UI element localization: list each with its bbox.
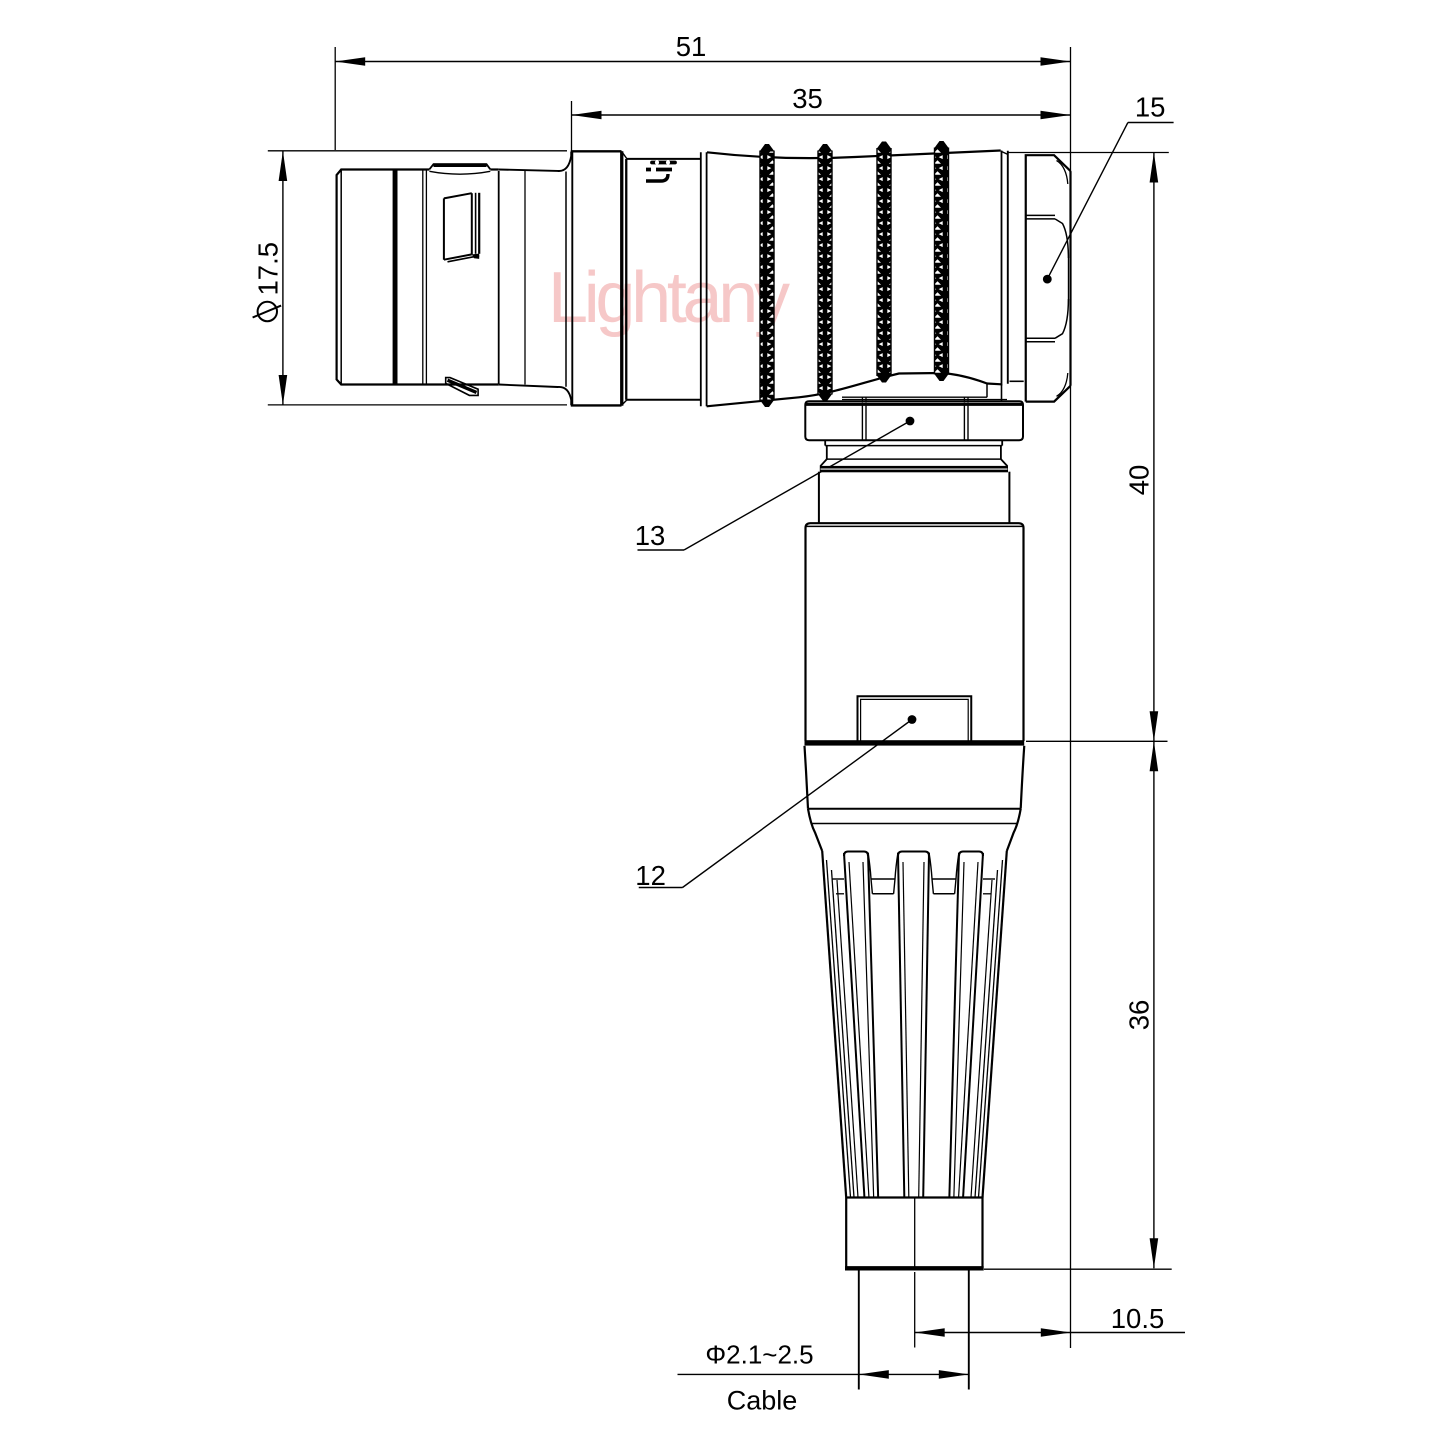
svg-text:36: 36 (1123, 1000, 1154, 1031)
svg-text:15: 15 (1135, 92, 1166, 123)
svg-text:13: 13 (635, 520, 666, 551)
svg-text:12: 12 (635, 860, 666, 891)
svg-text:35: 35 (792, 83, 823, 114)
svg-text:17.5: 17.5 (253, 242, 284, 296)
svg-text:Lightany: Lightany (548, 258, 790, 338)
svg-text:40: 40 (1123, 465, 1154, 496)
svg-text:Φ2.1~2.5: Φ2.1~2.5 (705, 1340, 813, 1370)
svg-text:10.5: 10.5 (1111, 1303, 1165, 1334)
svg-text:Cable: Cable (727, 1386, 798, 1416)
svg-text:51: 51 (676, 31, 707, 62)
